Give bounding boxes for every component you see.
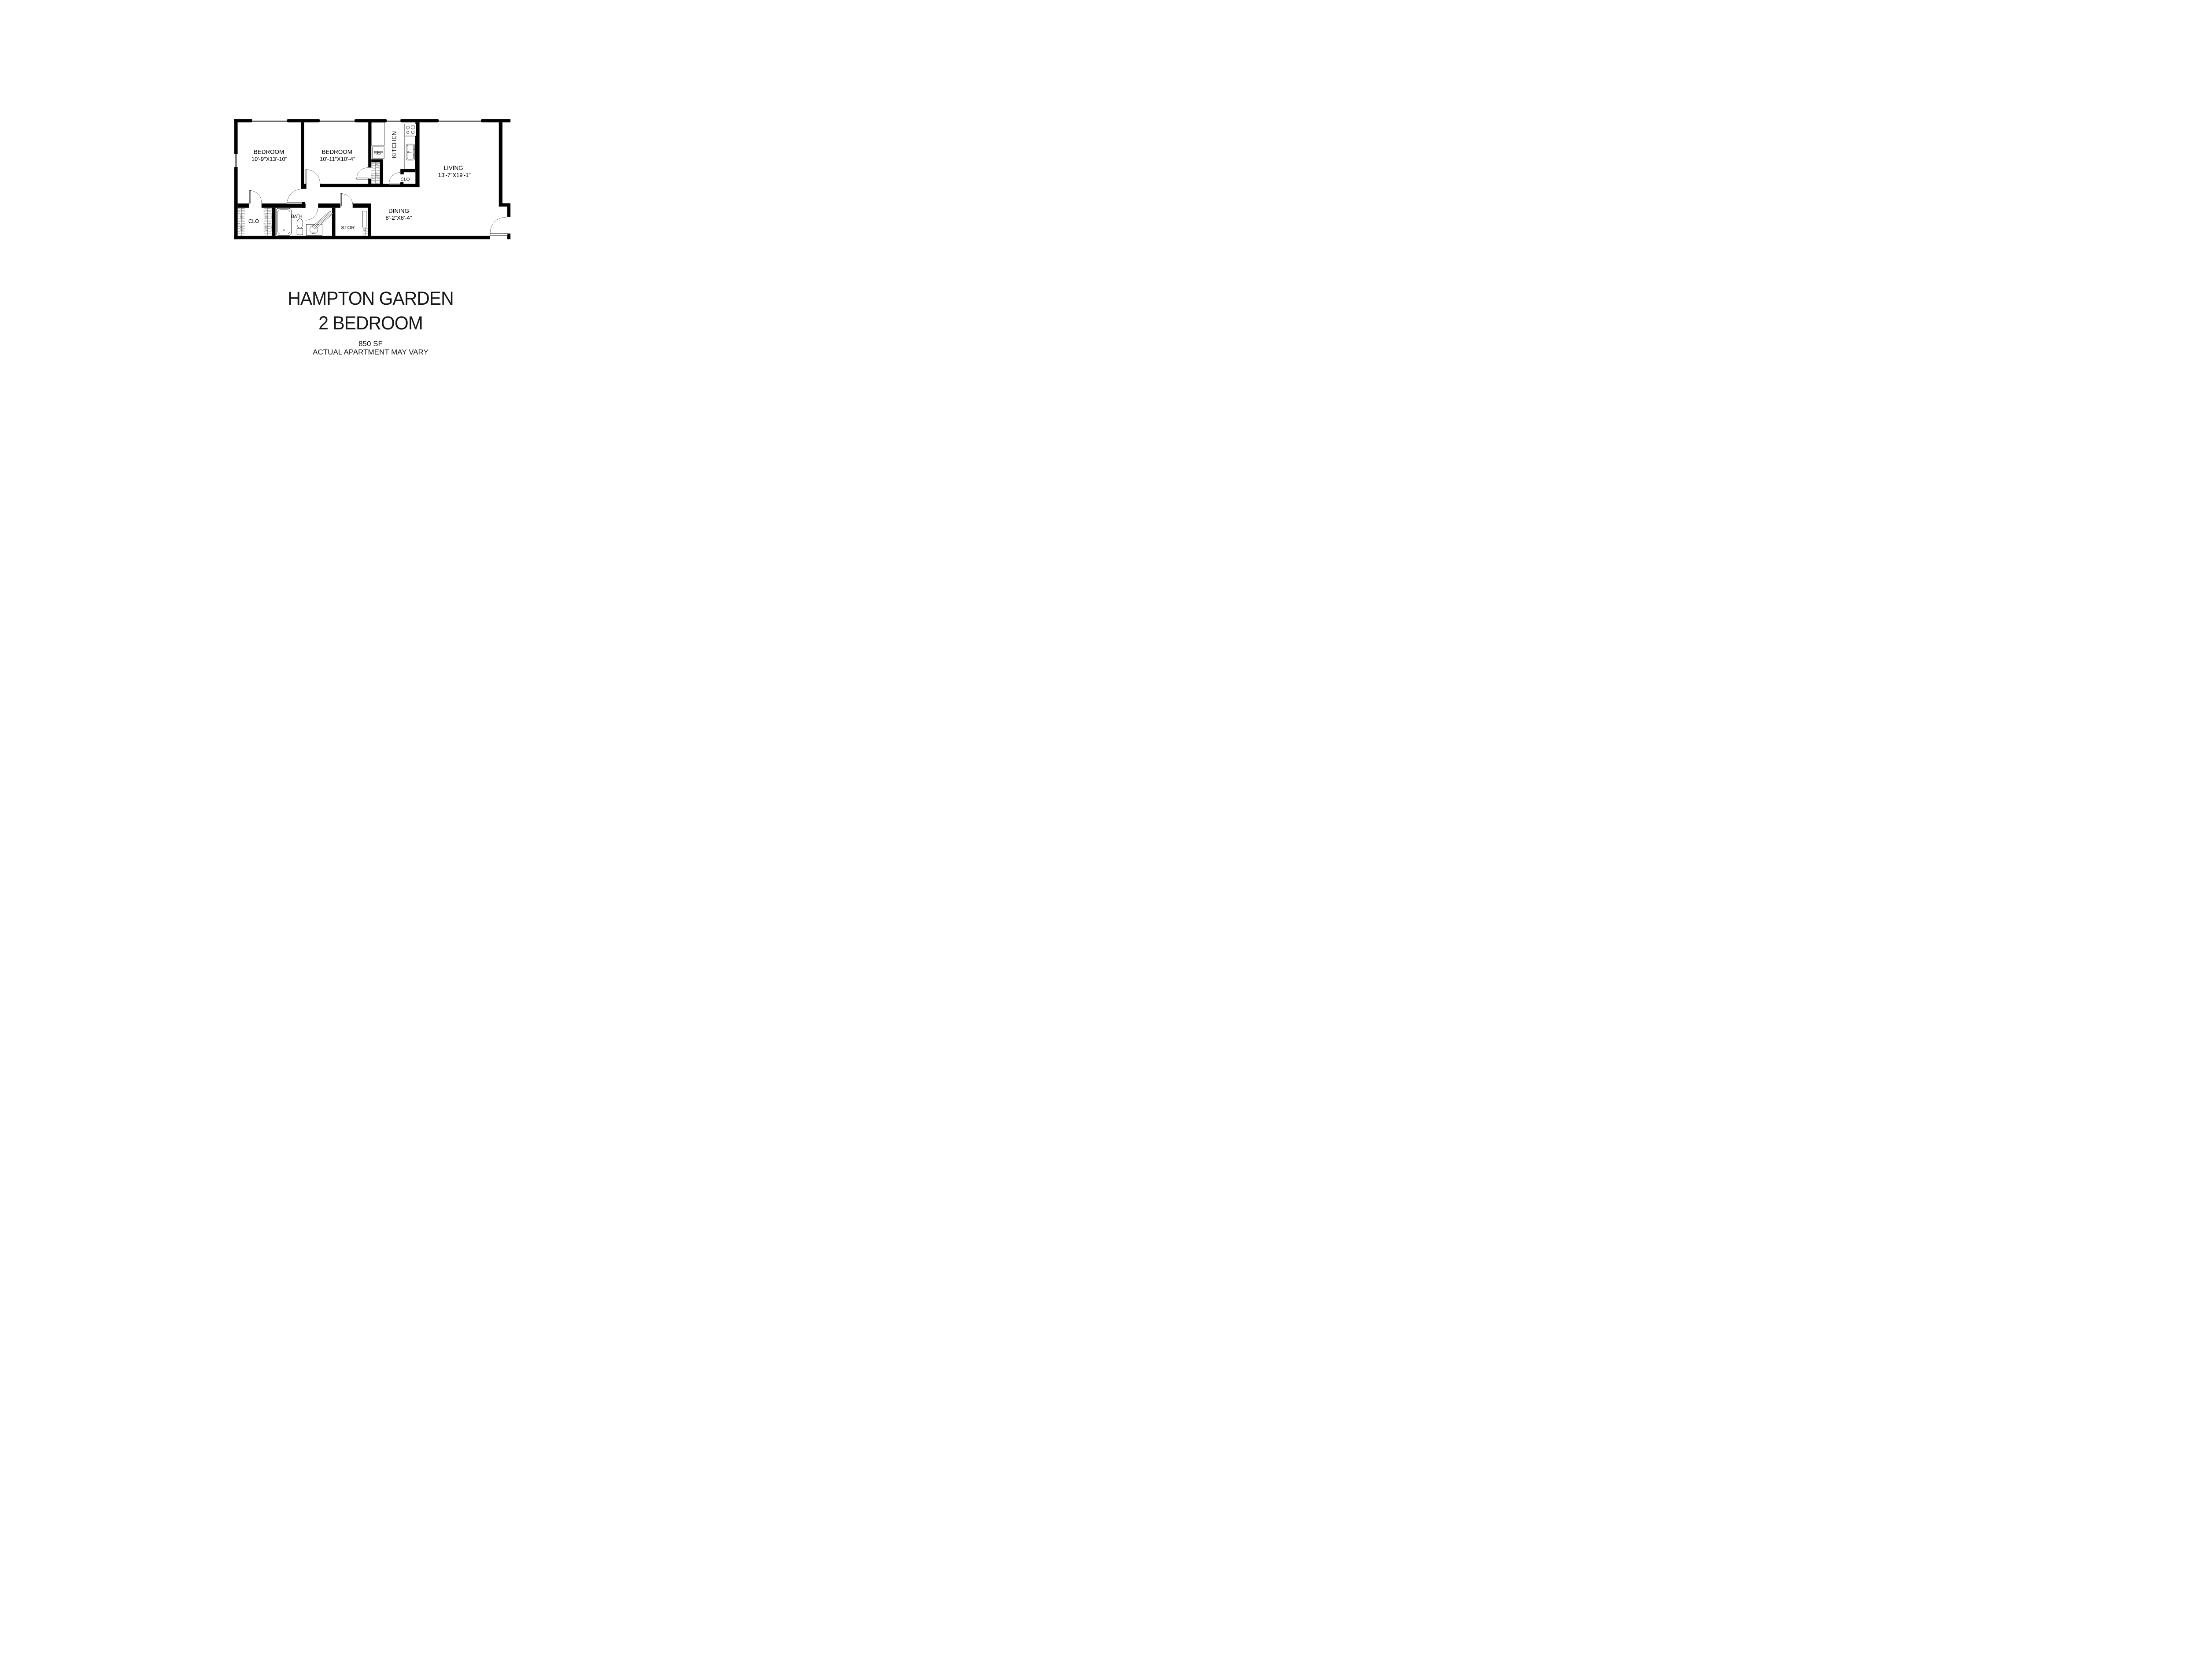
bedroom2-label: BEDROOM	[322, 148, 352, 155]
bedroom2-closet-door-swing	[357, 167, 368, 178]
kitchen-sink-counter	[405, 136, 415, 169]
kitchen-closet-door-leaf	[389, 183, 400, 185]
bathtub	[276, 208, 291, 235]
floor-plan: BEDROOM 10'-9"X13'-10" BEDROOM 10'-11"X1…	[234, 118, 513, 243]
plan-title: HAMPTON GARDEN	[18, 289, 723, 309]
stor-shelf	[362, 211, 367, 227]
toilet	[297, 219, 303, 235]
refrigerator-label: REF	[373, 150, 383, 155]
dining-dims: 8'-2"X8'-4"	[386, 214, 412, 221]
hall-door-swing	[287, 189, 303, 203]
kitchen-cabinet	[371, 122, 385, 145]
stor-door-leaf	[340, 193, 342, 206]
bedroom2-dims: 10'-11"X10'-4"	[320, 155, 355, 162]
bath-label: BATH	[291, 214, 302, 219]
bedroom2-closet-door-leaf	[357, 178, 368, 179]
entry-door-leaf	[490, 233, 508, 235]
bedroom2-door-swing	[306, 170, 320, 184]
living-dims: 13'-7"X19'-1"	[438, 172, 471, 178]
kitchen-label: KITCHEN	[391, 131, 398, 158]
bedroom2-door-leaf	[306, 170, 307, 184]
bedroom1-label: BEDROOM	[254, 148, 284, 155]
bath-door-swing	[306, 208, 318, 220]
entry-door-swing	[490, 217, 507, 234]
hall-door-leaf	[287, 203, 302, 204]
bedroom1-dims: 10'-9"X13'-10"	[251, 155, 288, 162]
stove	[405, 124, 416, 136]
plan-area: 850 SF	[0, 340, 741, 348]
bedroom1-door-swing	[250, 190, 262, 203]
plan-subtitle: 2 BEDROOM	[18, 314, 723, 334]
bedroom1-door-leaf	[249, 190, 251, 203]
stor-door-swing	[341, 193, 352, 204]
dining-label: DINING	[388, 208, 409, 214]
title-block: HAMPTON GARDEN 2 BEDROOM 850 SF ACTUAL A…	[0, 289, 741, 356]
plan-disclaimer: ACTUAL APARTMENT MAY VARY	[0, 348, 741, 356]
closet-hall-label: CLO	[248, 218, 259, 225]
closet-kitchen-label: CLO	[401, 177, 410, 182]
kitchen-closet-door-swing	[389, 172, 400, 183]
storage-label: STOR	[341, 225, 355, 231]
living-label: LIVING	[444, 165, 463, 171]
